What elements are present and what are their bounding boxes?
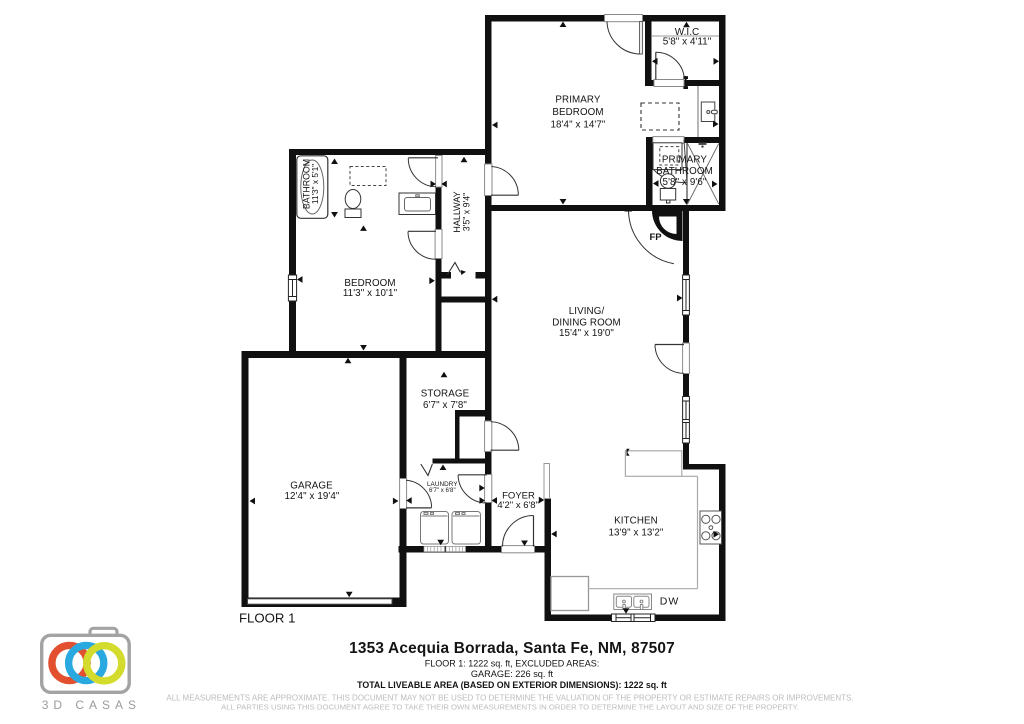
svg-text:DW: DW bbox=[660, 596, 680, 608]
svg-text:GARAGE: GARAGE bbox=[290, 480, 333, 491]
svg-text:FLOOR 1: FLOOR 1 bbox=[239, 611, 295, 626]
svg-text:STORAGE: STORAGE bbox=[421, 389, 470, 400]
svg-text:PRIMARY: PRIMARY bbox=[662, 155, 708, 166]
svg-text:TOTAL LIVEABLE AREA (BASED ON: TOTAL LIVEABLE AREA (BASED ON EXTERIOR D… bbox=[357, 680, 667, 690]
svg-text:5'8" x 9'6": 5'8" x 9'6" bbox=[663, 177, 707, 188]
svg-text:FP: FP bbox=[650, 232, 663, 243]
svg-text:6'7" x 7'8": 6'7" x 7'8" bbox=[423, 400, 467, 411]
svg-text:DINING ROOM: DINING ROOM bbox=[552, 317, 621, 328]
svg-text:BATHROOM: BATHROOM bbox=[656, 166, 713, 177]
svg-text:11'3" x 10'1": 11'3" x 10'1" bbox=[343, 288, 398, 299]
svg-text:12'4" x 19'4": 12'4" x 19'4" bbox=[284, 491, 339, 502]
svg-text:PRIMARY: PRIMARY bbox=[555, 95, 601, 106]
svg-text:1353 Acequia Borrada, Santa Fe: 1353 Acequia Borrada, Santa Fe, NM, 8750… bbox=[349, 640, 675, 657]
svg-text:FLOOR 1: 1222 sq. ft, EXCLUDED: FLOOR 1: 1222 sq. ft, EXCLUDED AREAS: bbox=[425, 659, 600, 669]
svg-text:HALLWAY: HALLWAY bbox=[452, 191, 462, 232]
svg-text:15'4" x 19'0": 15'4" x 19'0" bbox=[559, 328, 614, 339]
svg-text:11'3" x 5'1": 11'3" x 5'1" bbox=[310, 164, 320, 204]
svg-text:ALL MEASUREMENTS ARE APPROXIMA: ALL MEASUREMENTS ARE APPROXIMATE. THIS D… bbox=[166, 694, 853, 703]
svg-text:6'7" x 6'8": 6'7" x 6'8" bbox=[429, 487, 456, 494]
svg-text:3D CASAS: 3D CASAS bbox=[42, 698, 141, 712]
svg-text:ALL PARTIES USING THIS DOCUMEN: ALL PARTIES USING THIS DOCUMENT AGREE TO… bbox=[221, 703, 799, 712]
svg-text:13'9" x 13'2": 13'9" x 13'2" bbox=[608, 528, 663, 539]
svg-text:18'4" x 14'7": 18'4" x 14'7" bbox=[550, 120, 605, 131]
svg-text:GARAGE: 226 sq. ft: GARAGE: 226 sq. ft bbox=[471, 669, 554, 679]
svg-text:LIVING/: LIVING/ bbox=[569, 306, 605, 317]
svg-text:3'5" x 9'4": 3'5" x 9'4" bbox=[462, 193, 472, 231]
svg-text:KITCHEN: KITCHEN bbox=[614, 516, 658, 527]
svg-text:4'2" x 6'8": 4'2" x 6'8" bbox=[497, 500, 539, 511]
svg-text:5'8" x 4'11": 5'8" x 4'11" bbox=[663, 37, 712, 48]
svg-text:BEDROOM: BEDROOM bbox=[552, 107, 603, 118]
